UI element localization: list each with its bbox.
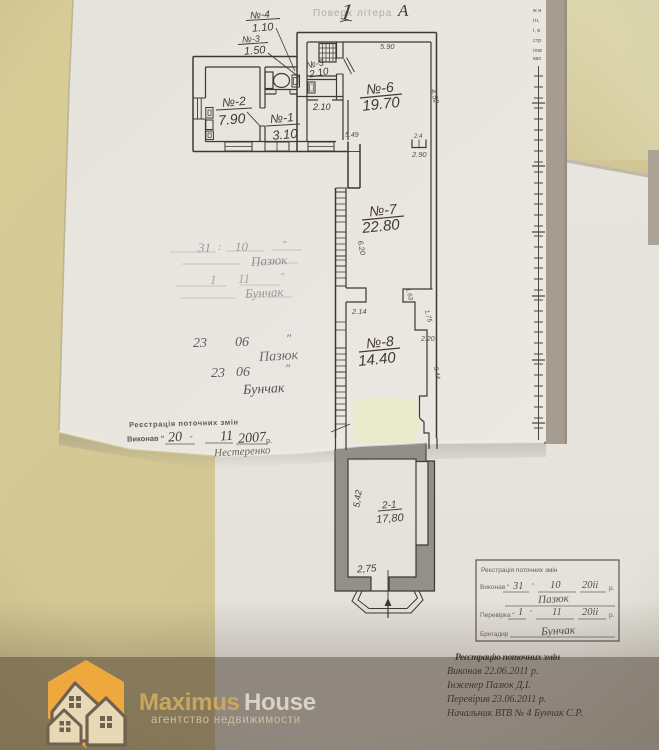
svg-text:Maximus: Maximus <box>139 689 240 716</box>
svg-text:House: House <box>244 689 316 716</box>
svg-text:агентство недвижимости: агентство недвижимости <box>151 714 301 726</box>
